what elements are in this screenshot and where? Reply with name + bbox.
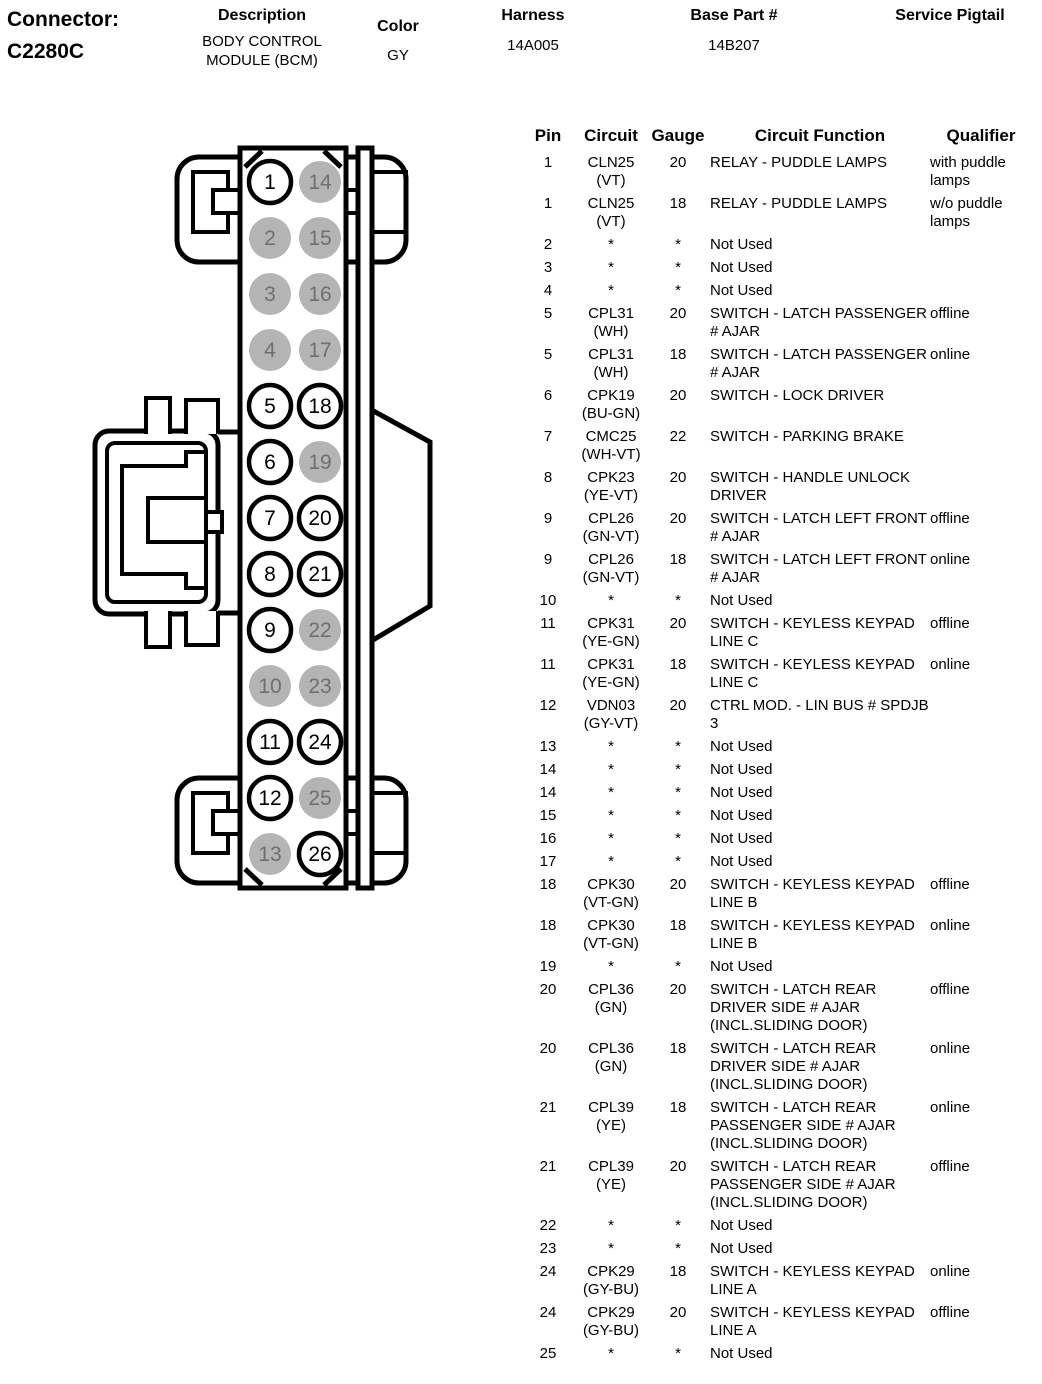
- cell-gauge: 18: [646, 656, 710, 697]
- cell-gauge: 20: [646, 981, 710, 1040]
- cell-qualifier: offline: [930, 615, 1032, 656]
- cell-qualifier: [930, 738, 1032, 761]
- cell-circuit: *: [576, 761, 646, 784]
- cell-circuit: CPL36(GN): [576, 981, 646, 1040]
- pinout-row: 20CPL36(GN)18SWITCH - LATCH REAR DRIVER …: [520, 1040, 1032, 1099]
- cell-qualifier: offline: [930, 1158, 1032, 1217]
- cell-function: SWITCH - KEYLESS KEYPAD LINE B: [710, 917, 930, 958]
- cell-pin: 5: [520, 346, 576, 387]
- color-value: GY: [369, 46, 427, 65]
- pin-number-22: 22: [308, 619, 331, 642]
- pinout-row: 16**Not Used: [520, 830, 1032, 853]
- pinout-row: 11CPK31(YE-GN)20SWITCH - KEYLESS KEYPAD …: [520, 615, 1032, 656]
- cell-gauge: *: [646, 1240, 710, 1263]
- cell-circuit: CMC25(WH-VT): [576, 428, 646, 469]
- cell-gauge: *: [646, 282, 710, 305]
- cell-qualifier: offline: [930, 981, 1032, 1040]
- cell-function: Not Used: [710, 1345, 930, 1368]
- cell-qualifier: [930, 259, 1032, 282]
- cell-qualifier: [930, 958, 1032, 981]
- cell-gauge: 20: [646, 876, 710, 917]
- cell-function: Not Used: [710, 738, 930, 761]
- cell-qualifier: [930, 697, 1032, 738]
- cell-circuit: CPL39(YE): [576, 1158, 646, 1217]
- cell-gauge: *: [646, 784, 710, 807]
- pinout-row: 21CPL39(YE)18SWITCH - LATCH REAR PASSENG…: [520, 1099, 1032, 1158]
- base-part-label: Base Part #: [672, 7, 796, 25]
- cell-qualifier: [930, 387, 1032, 428]
- top-left-clip-tab: [213, 190, 241, 213]
- col-header-qualifier: Qualifier: [930, 126, 1032, 154]
- connector-label: Connector:: [7, 8, 119, 32]
- cell-circuit: CPL36(GN): [576, 1040, 646, 1099]
- bottom-left-clip-tab: [213, 811, 241, 834]
- pin-number-1: 1: [264, 171, 276, 194]
- cell-qualifier: [930, 592, 1032, 615]
- pinout-row: 24CPK29(GY-BU)18SWITCH - KEYLESS KEYPAD …: [520, 1263, 1032, 1304]
- cell-gauge: 20: [646, 305, 710, 346]
- cell-function: SWITCH - LATCH REAR DRIVER SIDE # AJAR (…: [710, 981, 930, 1040]
- pin-number-16: 16: [308, 283, 331, 306]
- cell-function: Not Used: [710, 761, 930, 784]
- cell-function: SWITCH - LATCH PASSENGER # AJAR: [710, 305, 930, 346]
- cell-circuit: CPK30(VT-GN): [576, 917, 646, 958]
- pinout-row: 4**Not Used: [520, 282, 1032, 305]
- cell-function: RELAY - PUDDLE LAMPS: [710, 154, 930, 195]
- cell-pin: 5: [520, 305, 576, 346]
- pinout-row: 18CPK30(VT-GN)18SWITCH - KEYLESS KEYPAD …: [520, 917, 1032, 958]
- cell-gauge: *: [646, 1345, 710, 1368]
- cell-function: SWITCH - LOCK DRIVER: [710, 387, 930, 428]
- pinout-row: 11CPK31(YE-GN)18SWITCH - KEYLESS KEYPAD …: [520, 656, 1032, 697]
- cell-function: SWITCH - LATCH PASSENGER # AJAR: [710, 346, 930, 387]
- cell-pin: 13: [520, 738, 576, 761]
- pinout-row: 5CPL31(WH)20SWITCH - LATCH PASSENGER # A…: [520, 305, 1032, 346]
- lock-lever-top-tab: [146, 398, 170, 434]
- cell-qualifier: offline: [930, 876, 1032, 917]
- pinout-row: 19**Not Used: [520, 958, 1032, 981]
- cell-gauge: 22: [646, 428, 710, 469]
- cell-circuit: *: [576, 853, 646, 876]
- cell-function: SWITCH - LATCH REAR PASSENGER SIDE # AJA…: [710, 1099, 930, 1158]
- cell-circuit: *: [576, 830, 646, 853]
- pinout-row: 6CPK19(BU-GN)20SWITCH - LOCK DRIVER: [520, 387, 1032, 428]
- cell-qualifier: online: [930, 1040, 1032, 1099]
- cell-gauge: *: [646, 830, 710, 853]
- harness-label: Harness: [487, 7, 579, 25]
- cell-gauge: *: [646, 259, 710, 282]
- cell-circuit: CPK23(YE-VT): [576, 469, 646, 510]
- cell-pin: 2: [520, 236, 576, 259]
- lock-lever-top-step: [186, 400, 218, 434]
- cell-qualifier: online: [930, 1099, 1032, 1158]
- pinout-row: 7CMC25(WH-VT)22SWITCH - PARKING BRAKE: [520, 428, 1032, 469]
- cell-qualifier: [930, 1217, 1032, 1240]
- pinout-row: 14**Not Used: [520, 761, 1032, 784]
- cell-qualifier: [930, 1240, 1032, 1263]
- cell-pin: 8: [520, 469, 576, 510]
- cell-gauge: 18: [646, 917, 710, 958]
- cell-function: Not Used: [710, 236, 930, 259]
- pin-number-11: 11: [259, 731, 281, 754]
- cell-function: Not Used: [710, 592, 930, 615]
- cell-pin: 7: [520, 428, 576, 469]
- cell-circuit: *: [576, 282, 646, 305]
- cell-function: SWITCH - LATCH LEFT FRONT # AJAR: [710, 510, 930, 551]
- pin-number-10: 10: [258, 675, 281, 698]
- cell-pin: 24: [520, 1304, 576, 1345]
- right-wedge-shape: [368, 408, 430, 643]
- cell-gauge: 20: [646, 469, 710, 510]
- cell-qualifier: [930, 807, 1032, 830]
- cell-pin: 19: [520, 958, 576, 981]
- cell-qualifier: [930, 236, 1032, 259]
- connector-face-diagram: 1234567891011121314151617181920212223242…: [88, 140, 440, 896]
- cell-pin: 17: [520, 853, 576, 876]
- cell-circuit: CPL39(YE): [576, 1099, 646, 1158]
- pinout-row: 12VDN03(GY-VT)20CTRL MOD. - LIN BUS # SP…: [520, 697, 1032, 738]
- cell-gauge: 18: [646, 346, 710, 387]
- cell-qualifier: [930, 784, 1032, 807]
- pin-number-4: 4: [264, 339, 276, 362]
- cell-qualifier: online: [930, 551, 1032, 592]
- pinout-row: 9CPL26(GN-VT)20SWITCH - LATCH LEFT FRONT…: [520, 510, 1032, 551]
- cell-gauge: *: [646, 236, 710, 259]
- cell-circuit: *: [576, 1240, 646, 1263]
- pinout-row: 23**Not Used: [520, 1240, 1032, 1263]
- cell-function: SWITCH - HANDLE UNLOCK DRIVER: [710, 469, 930, 510]
- cell-circuit: CPK19(BU-GN): [576, 387, 646, 428]
- pin-number-18: 18: [308, 395, 331, 418]
- cell-pin: 24: [520, 1263, 576, 1304]
- col-header-circuit-function: Circuit Function: [710, 126, 930, 154]
- cell-function: SWITCH - KEYLESS KEYPAD LINE C: [710, 615, 930, 656]
- cell-qualifier: offline: [930, 305, 1032, 346]
- pin-number-2: 2: [264, 227, 276, 250]
- cell-gauge: 18: [646, 1263, 710, 1304]
- cell-qualifier: [930, 1345, 1032, 1368]
- color-label: Color: [369, 18, 427, 36]
- cell-gauge: 20: [646, 510, 710, 551]
- col-header-pin: Pin: [520, 126, 576, 154]
- cell-circuit: VDN03(GY-VT): [576, 697, 646, 738]
- cell-gauge: *: [646, 853, 710, 876]
- pin-number-12: 12: [258, 787, 281, 810]
- cell-pin: 6: [520, 387, 576, 428]
- cell-circuit: *: [576, 259, 646, 282]
- service-pigtail-label: Service Pigtail: [862, 7, 1038, 25]
- cell-circuit: CPL31(WH): [576, 305, 646, 346]
- lock-lever-bottom-step: [186, 611, 218, 645]
- pinout-row: 9CPL26(GN-VT)18SWITCH - LATCH LEFT FRONT…: [520, 551, 1032, 592]
- cell-function: CTRL MOD. - LIN BUS # SPDJB 3: [710, 697, 930, 738]
- cell-function: SWITCH - KEYLESS KEYPAD LINE B: [710, 876, 930, 917]
- cell-circuit: CPK30(VT-GN): [576, 876, 646, 917]
- pin-number-26: 26: [308, 843, 331, 866]
- pinout-row: 3**Not Used: [520, 259, 1032, 282]
- cell-qualifier: online: [930, 1263, 1032, 1304]
- harness-value: 14A005: [487, 36, 579, 55]
- cell-function: Not Used: [710, 1240, 930, 1263]
- cell-circuit: CPK29(GY-BU): [576, 1304, 646, 1345]
- cell-gauge: 18: [646, 1099, 710, 1158]
- cell-qualifier: online: [930, 346, 1032, 387]
- cell-gauge: *: [646, 592, 710, 615]
- cell-gauge: 20: [646, 154, 710, 195]
- cell-circuit: CPL26(GN-VT): [576, 551, 646, 592]
- pinout-row: 22**Not Used: [520, 1217, 1032, 1240]
- cell-gauge: 18: [646, 551, 710, 592]
- cell-gauge: 20: [646, 1158, 710, 1217]
- pin-number-15: 15: [308, 227, 331, 250]
- description-value: BODY CONTROL MODULE (BCM): [172, 32, 352, 70]
- cell-function: Not Used: [710, 807, 930, 830]
- pinout-row: 2**Not Used: [520, 236, 1032, 259]
- cell-qualifier: [930, 830, 1032, 853]
- description-line1: BODY CONTROL: [172, 32, 352, 51]
- cell-pin: 14: [520, 761, 576, 784]
- cell-function: Not Used: [710, 958, 930, 981]
- cell-pin: 11: [520, 656, 576, 697]
- pin-number-23: 23: [308, 675, 331, 698]
- cell-pin: 25: [520, 1345, 576, 1368]
- cell-circuit: CLN25(VT): [576, 154, 646, 195]
- cell-function: SWITCH - LATCH REAR DRIVER SIDE # AJAR (…: [710, 1040, 930, 1099]
- col-header-gauge: Gauge: [646, 126, 710, 154]
- cell-circuit: *: [576, 784, 646, 807]
- pin-number-17: 17: [308, 339, 331, 362]
- cell-pin: 4: [520, 282, 576, 305]
- cell-gauge: *: [646, 738, 710, 761]
- cell-gauge: *: [646, 807, 710, 830]
- pin-number-5: 5: [264, 395, 276, 418]
- cell-gauge: 20: [646, 1304, 710, 1345]
- pin-number-6: 6: [264, 451, 276, 474]
- cell-function: SWITCH - PARKING BRAKE: [710, 428, 930, 469]
- description-line2: MODULE (BCM): [172, 51, 352, 70]
- cell-qualifier: offline: [930, 1304, 1032, 1345]
- lock-lever-bottom-tab: [146, 611, 170, 647]
- cell-function: SWITCH - LATCH LEFT FRONT # AJAR: [710, 551, 930, 592]
- pinout-row: 17**Not Used: [520, 853, 1032, 876]
- cell-pin: 18: [520, 876, 576, 917]
- cell-circuit: *: [576, 1217, 646, 1240]
- cell-qualifier: offline: [930, 510, 1032, 551]
- cell-pin: 12: [520, 697, 576, 738]
- connector-id: C2280C: [7, 40, 84, 64]
- cell-gauge: 20: [646, 387, 710, 428]
- base-part-value: 14B207: [672, 36, 796, 55]
- pin-number-13: 13: [258, 843, 281, 866]
- cell-function: Not Used: [710, 853, 930, 876]
- pin-number-7: 7: [264, 507, 276, 530]
- pinout-row: 18CPK30(VT-GN)20SWITCH - KEYLESS KEYPAD …: [520, 876, 1032, 917]
- cell-function: Not Used: [710, 259, 930, 282]
- cell-circuit: *: [576, 592, 646, 615]
- cell-function: SWITCH - KEYLESS KEYPAD LINE A: [710, 1304, 930, 1345]
- cell-pin: 1: [520, 195, 576, 236]
- cell-pin: 21: [520, 1099, 576, 1158]
- cell-gauge: 18: [646, 195, 710, 236]
- pinout-row: 15**Not Used: [520, 807, 1032, 830]
- description-label: Description: [197, 7, 327, 25]
- cell-qualifier: [930, 761, 1032, 784]
- cell-pin: 18: [520, 917, 576, 958]
- cell-qualifier: [930, 282, 1032, 305]
- cell-pin: 1: [520, 154, 576, 195]
- pin-number-24: 24: [308, 731, 332, 754]
- pin-number-8: 8: [264, 563, 276, 586]
- cell-pin: 22: [520, 1217, 576, 1240]
- cell-pin: 23: [520, 1240, 576, 1263]
- pinout-row: 25**Not Used: [520, 1345, 1032, 1368]
- pin-number-14: 14: [308, 171, 332, 194]
- connector-pinout-page: Connector: C2280C Description BODY CONTR…: [0, 0, 1042, 1384]
- cell-circuit: CPK31(YE-GN): [576, 615, 646, 656]
- pinout-row: 10**Not Used: [520, 592, 1032, 615]
- pinout-row: 20CPL36(GN)20SWITCH - LATCH REAR DRIVER …: [520, 981, 1032, 1040]
- cell-function: Not Used: [710, 830, 930, 853]
- cell-pin: 9: [520, 551, 576, 592]
- pinout-row: 8CPK23(YE-VT)20SWITCH - HANDLE UNLOCK DR…: [520, 469, 1032, 510]
- pinout-row: 1CLN25(VT)18RELAY - PUDDLE LAMPSw/o pudd…: [520, 195, 1032, 236]
- cell-circuit: CPK29(GY-BU): [576, 1263, 646, 1304]
- pin-number-21: 21: [308, 563, 331, 586]
- cell-circuit: *: [576, 807, 646, 830]
- cell-gauge: *: [646, 1217, 710, 1240]
- cell-gauge: 20: [646, 615, 710, 656]
- cell-pin: 20: [520, 981, 576, 1040]
- cell-qualifier: w/o puddle lamps: [930, 195, 1032, 236]
- pinout-row: 1CLN25(VT)20RELAY - PUDDLE LAMPSwith pud…: [520, 154, 1032, 195]
- cell-pin: 3: [520, 259, 576, 282]
- cell-gauge: *: [646, 958, 710, 981]
- cell-function: SWITCH - KEYLESS KEYPAD LINE A: [710, 1263, 930, 1304]
- cell-pin: 10: [520, 592, 576, 615]
- cell-qualifier: online: [930, 656, 1032, 697]
- pin-number-9: 9: [264, 619, 276, 642]
- cell-circuit: CPL31(WH): [576, 346, 646, 387]
- pin-number-20: 20: [308, 507, 331, 530]
- pinout-row: 21CPL39(YE)20SWITCH - LATCH REAR PASSENG…: [520, 1158, 1032, 1217]
- cell-function: Not Used: [710, 282, 930, 305]
- cell-qualifier: online: [930, 917, 1032, 958]
- col-header-circuit: Circuit: [576, 126, 646, 154]
- pin-number-25: 25: [308, 787, 331, 810]
- cell-qualifier: [930, 428, 1032, 469]
- cell-pin: 21: [520, 1158, 576, 1217]
- cell-gauge: *: [646, 761, 710, 784]
- cell-pin: 16: [520, 830, 576, 853]
- cell-pin: 9: [520, 510, 576, 551]
- cell-gauge: 20: [646, 697, 710, 738]
- cell-function: SWITCH - LATCH REAR PASSENGER SIDE # AJA…: [710, 1158, 930, 1217]
- cell-circuit: CPK31(YE-GN): [576, 656, 646, 697]
- cell-qualifier: [930, 469, 1032, 510]
- cell-qualifier: with puddle lamps: [930, 154, 1032, 195]
- cell-circuit: *: [576, 1345, 646, 1368]
- cell-circuit: *: [576, 236, 646, 259]
- pinout-row: 24CPK29(GY-BU)20SWITCH - KEYLESS KEYPAD …: [520, 1304, 1032, 1345]
- cell-pin: 20: [520, 1040, 576, 1099]
- cell-circuit: CPL26(GN-VT): [576, 510, 646, 551]
- cell-circuit: *: [576, 738, 646, 761]
- pinout-header-row: Pin Circuit Gauge Circuit Function Quali…: [520, 126, 1032, 154]
- pinout-row: 13**Not Used: [520, 738, 1032, 761]
- cell-qualifier: [930, 853, 1032, 876]
- pinout-row: 14**Not Used: [520, 784, 1032, 807]
- body-rail: [358, 148, 372, 888]
- pin-number-19: 19: [308, 451, 331, 474]
- cell-pin: 14: [520, 784, 576, 807]
- cell-function: Not Used: [710, 1217, 930, 1240]
- cell-circuit: *: [576, 958, 646, 981]
- pinout-table: Pin Circuit Gauge Circuit Function Quali…: [520, 126, 1032, 1368]
- cell-gauge: 18: [646, 1040, 710, 1099]
- lock-lever-nub: [206, 512, 222, 532]
- cell-function: Not Used: [710, 784, 930, 807]
- pinout-row: 5CPL31(WH)18SWITCH - LATCH PASSENGER # A…: [520, 346, 1032, 387]
- pin-number-3: 3: [264, 283, 276, 306]
- cell-circuit: CLN25(VT): [576, 195, 646, 236]
- cell-function: SWITCH - KEYLESS KEYPAD LINE C: [710, 656, 930, 697]
- cell-function: RELAY - PUDDLE LAMPS: [710, 195, 930, 236]
- cell-pin: 15: [520, 807, 576, 830]
- cell-pin: 11: [520, 615, 576, 656]
